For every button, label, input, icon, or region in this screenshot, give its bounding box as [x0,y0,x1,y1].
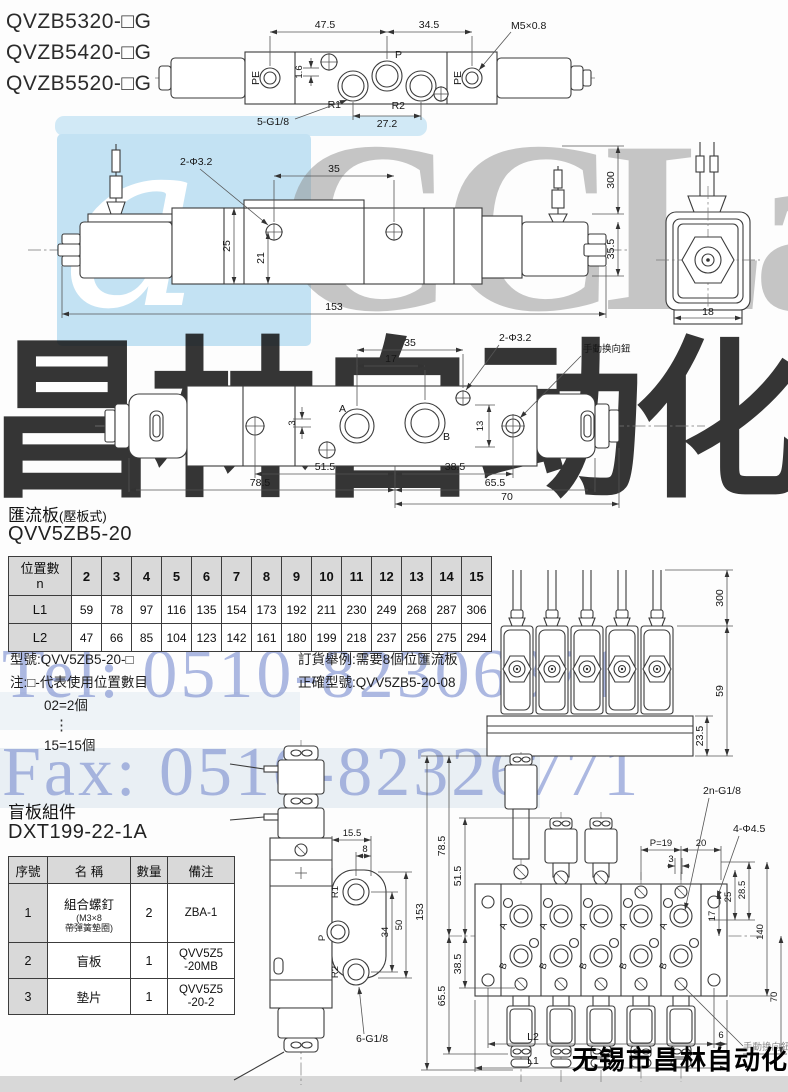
port-r2: R2 [330,966,341,978]
l1-value-cell: 116 [162,596,192,624]
position-count-cell: 2 [72,557,102,596]
col-seq: 序號 [9,857,48,884]
manifold-subtitle-text: (壓板式) [59,509,107,524]
l2-value-cell: 294 [462,624,492,652]
dim-15-5: 15.5 [343,828,362,839]
position-count-cell: 8 [252,557,282,596]
position-count-cell: 10 [312,557,342,596]
dim-65-5: 65.5 [485,477,506,489]
manual-override-label: 手動换向鈕 [583,343,631,355]
position-count-cell: 11 [342,557,372,596]
col-note: 備注 [168,857,235,884]
dim-50: 50 [394,920,405,931]
note-note-line: 注:□-代表使用位置數目 [10,671,148,694]
dim-51-5: 51.5 [452,866,464,887]
part-qty: 1 [131,979,168,1015]
part-note: QVV5Z5 -20-2 [168,979,235,1015]
front-view-drawing: 2-Φ3.2 35 300 35.5 25 21 153 [28,138,628,330]
l1-row-label: L1 [9,596,72,624]
ports-thread-label: 2n-G1/8 [703,785,741,797]
dim-300: 300 [605,171,617,189]
l2-value-cell: 161 [252,624,282,652]
dim-78-5: 78.5 [436,836,448,857]
dim-35: 35 [328,163,340,175]
l1-value-cell: 306 [462,596,492,624]
note-example-1: 02=2個 [44,694,148,717]
dim-47-5: 47.5 [315,19,336,31]
dim-70: 70 [501,491,513,503]
dim-140: 140 [755,924,766,940]
part-name-sub: (M3×8 帶彈簧墊圈) [50,913,128,933]
l1-value-cell: 230 [342,596,372,624]
company-stamp: 无锡市昌林自动化科技 [572,1040,788,1077]
dim-2phi32: 2-Φ3.2 [499,332,531,344]
position-header-sub: n [10,576,70,591]
part-no: 3 [9,979,48,1015]
dim-17: 17 [707,911,718,922]
dim-l2: L2 [527,1031,539,1043]
position-count-cell: 6 [192,557,222,596]
dim-70: 70 [769,992,780,1003]
dim-2phi32: 2-Φ3.2 [180,156,212,168]
ordering-notes-right: 訂貨舉例:需要8個位匯流板 正確型號:QVV5ZB5-20-08 [298,648,458,694]
ports-thread-label: 5-G1/8 [257,116,289,128]
part-no: 1 [9,884,48,943]
dim-34: 34 [380,927,391,938]
parts-row: 3 墊片 1 QVV5Z5 -20-2 [9,979,235,1015]
position-count-cell: 9 [282,557,312,596]
port-b: B [443,431,450,443]
part-no: 2 [9,943,48,979]
l1-value-cell: 97 [132,596,162,624]
l1-value-cell: 249 [372,596,402,624]
l1-value-cell: 211 [312,596,342,624]
dim-21: 21 [255,252,267,264]
thread-label: M5×0.8 [511,20,546,32]
l1-value-cell: 192 [282,596,312,624]
position-count-cell: 15 [462,557,492,596]
part-qty: 2 [131,884,168,943]
catalog-page: a CCLair 昌林自动化 Tel: 0510-82306871 Fax: 0… [0,0,788,1092]
model-number: QVZB5420-□G [6,37,151,68]
position-count-cell: 4 [132,557,162,596]
dim-34-5: 34.5 [419,19,440,31]
dim-153: 153 [325,301,343,313]
note-ellipsis: ⋮ [54,717,148,734]
parts-row: 1 組合螺釘(M3×8 帶彈簧墊圈) 2 ZBA-1 [9,884,235,943]
port-p: P [395,49,402,61]
blind-plate-model: DXT199-22-1A [8,821,147,844]
dim-65-5: 65.5 [436,986,448,1007]
position-count-cell: 5 [162,557,192,596]
parts-row: 2 盲板 1 QVV5Z5 -20MB [9,943,235,979]
dim-p19: P=19 [650,838,672,849]
dim-35: 35 [404,337,416,349]
l1-value-cell: 78 [102,596,132,624]
dim-18: 18 [702,306,714,318]
col-name: 名 稱 [48,857,131,884]
l2-value-cell: 142 [222,624,252,652]
l1-value-cell: 268 [402,596,432,624]
manifold-model: QVV5ZB5-20 [8,523,132,546]
port-a: A [339,403,346,415]
dim-300: 300 [714,589,726,607]
dim-153: 153 [414,903,426,921]
dim-17: 17 [385,353,397,365]
dim-25: 25 [723,892,734,903]
position-count-cell: 13 [402,557,432,596]
l1-value-cell: 173 [252,596,282,624]
dim-35-5: 35.5 [605,239,617,260]
dim-28-5: 28.5 [737,881,748,900]
dim-38-5: 38.5 [452,954,464,975]
note-model-line: 型號:QVV5ZB5-20-□ [10,648,148,671]
model-number: QVZB5520-□G [6,68,151,99]
dim-l1: L1 [527,1055,539,1067]
dim-27-2: 27.2 [377,118,398,130]
model-number: QVZB5320-□G [6,6,151,37]
ordering-notes-left: 型號:QVV5ZB5-20-□ 注:□-代表使用位置數目 02=2個 ⋮ 15=… [10,648,148,757]
note-example-2: 15=15個 [44,734,148,757]
dim-23-5: 23.5 [694,726,706,747]
l2-value-cell: 104 [162,624,192,652]
part-name: 組合螺釘 [64,898,114,912]
dim-3: 3 [287,420,298,425]
position-header-top: 位置數 [10,561,70,576]
manifold-coils [501,570,673,714]
part-name: 墊片 [48,979,131,1015]
l1-value-cell: 154 [222,596,252,624]
port-pe-left: PE [250,71,262,85]
part-name: 盲板 [48,943,131,979]
dim-8: 8 [362,844,367,855]
position-count-cell: 7 [222,557,252,596]
dim-4phi45: 4-Φ4.5 [733,823,765,835]
port-p: P [317,935,328,941]
position-count-cell: 14 [432,557,462,596]
part-note: QVV5Z5 -20MB [168,943,235,979]
position-header: 位置數n [9,557,72,596]
position-count-cell: 3 [102,557,132,596]
bottom-view-drawing: A B 35 17 2-Φ3.2 手動换向鈕 3 13 51.5 38.5 78… [95,328,705,508]
l1-value-cell: 287 [432,596,462,624]
model-list: QVZB5320-□GQVZB5420-□GQVZB5520-□G [6,6,151,99]
col-qty: 數量 [131,857,168,884]
blind-plate-section-title: 盲板組件 [8,798,76,823]
side-view-drawing: 18 [628,138,788,330]
l1-value-cell: 59 [72,596,102,624]
dim-1-6: 1.6 [294,65,305,78]
dim-20: 20 [696,838,707,849]
port-r2: R2 [392,100,406,112]
note-order-model: 正確型號:QVV5ZB5-20-08 [298,671,458,694]
blind-plate-drawing: R1 P R2 15.5 8 34 50 6-G1/8 [228,740,440,1085]
dim-59: 59 [714,685,726,697]
l1-value-cell: 135 [192,596,222,624]
l2-value-cell: 123 [192,624,222,652]
manifold-front-drawing: 300 59 23.5 [475,556,788,768]
part-note: ZBA-1 [168,884,235,943]
dim-51-5: 51.5 [315,461,336,473]
position-count-cell: 12 [372,557,402,596]
ports-thread-label: 6-G1/8 [356,1033,388,1045]
dim-3: 3 [668,854,673,865]
dim-25: 25 [221,240,233,252]
port-pe-right: PE [452,71,464,85]
dim-38-5: 38.5 [445,461,466,473]
port-r1: R1 [330,886,341,898]
dim-78-5: 78.5 [250,477,271,489]
position-table: 位置數n 23456789101112131415 L1 59789711613… [8,556,492,652]
note-order-example: 訂貨舉例:需要8個位匯流板 [298,648,458,671]
dim-13: 13 [475,421,486,432]
top-view-drawing: 47.5 34.5 M5×0.8 PE PE P R1 R2 1.6 5-G1/… [155,16,595,128]
part-qty: 1 [131,943,168,979]
parts-table: 序號 名 稱 數量 備注 1 組合螺釘(M3×8 帶彈簧墊圈) 2 ZBA-1 … [8,856,235,1015]
